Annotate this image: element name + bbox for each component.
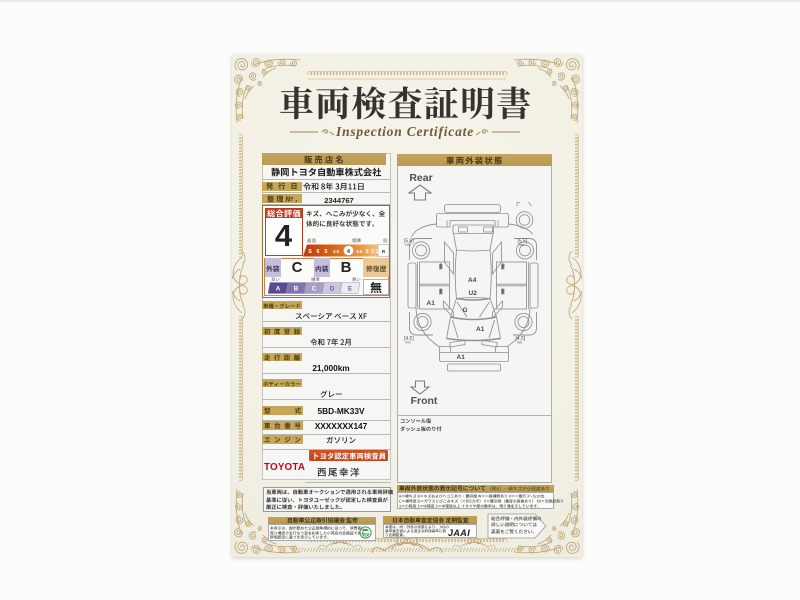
svg-text:6: 6 [317, 248, 320, 254]
svg-text:5: 5 [325, 248, 328, 254]
svg-text:U2: U2 [468, 290, 477, 297]
svg-text:mm: mm [405, 341, 411, 345]
svg-text:4.5: 4.5 [333, 248, 339, 253]
svg-text:S: S [308, 248, 312, 254]
svg-text:2: 2 [371, 248, 374, 254]
svg-text:mm: mm [517, 341, 523, 345]
svg-text:A4: A4 [468, 277, 477, 284]
svg-text:A1: A1 [426, 300, 435, 307]
svg-text:B: B [293, 285, 298, 292]
svg-text:A1: A1 [476, 326, 485, 333]
svg-text:3.5: 3.5 [356, 248, 362, 253]
svg-text:mm: mm [519, 243, 525, 247]
svg-text:C: C [311, 285, 316, 292]
svg-text:A1: A1 [456, 354, 465, 361]
svg-text:3: 3 [366, 248, 369, 254]
svg-text:4: 4 [347, 248, 350, 254]
svg-text:A: A [275, 285, 280, 292]
svg-text:E: E [347, 285, 351, 292]
svg-text:1: 1 [376, 248, 379, 254]
svg-text:mm: mm [405, 243, 411, 247]
svg-text:D: D [329, 285, 334, 292]
svg-text:G: G [462, 307, 467, 314]
